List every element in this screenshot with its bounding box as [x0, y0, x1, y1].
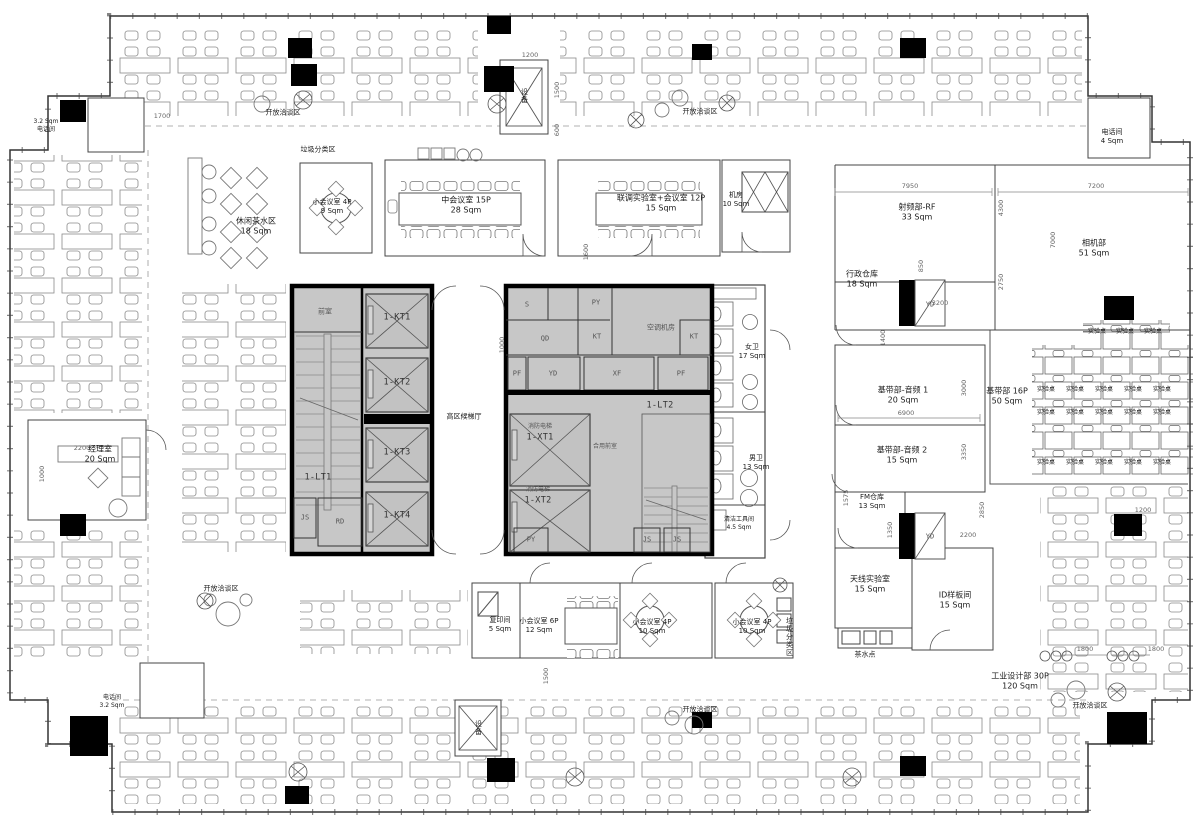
label-open-lounge-1: 开放洽谈区 [266, 108, 301, 117]
label-shaft-yd-top: YD [926, 300, 934, 309]
label-baseband-dept: 基带部 16P50 Sqm [986, 387, 1028, 408]
label-admin-warehouse: 行政仓库18 Sqm [846, 270, 878, 291]
dim-7200: 7200 [1088, 182, 1105, 190]
lab-table-label: 实验桌 [1124, 459, 1142, 467]
room-area: 15 Sqm [939, 601, 972, 611]
room-area: 4.5 Sqm [724, 524, 754, 532]
lab-table-label: 实验桌 [1066, 409, 1084, 417]
room-name: 机房 [723, 191, 750, 200]
label-joint-lab-meeting: 联调实验室+会议室 12P15 Sqm [617, 194, 705, 215]
label-men-wc: 男卫13 Sqm [743, 454, 770, 472]
label-elevator-kt3: 1-KT3 [383, 447, 410, 458]
room-name: 行政仓库 [846, 270, 878, 280]
dim-1000-core: 1000 [498, 337, 506, 354]
label-small-meeting-6p: 小会议室 6P12 Sqm [520, 617, 559, 635]
room-name: 联调实验室+会议室 12P [617, 194, 705, 204]
label-open-lounge-4: 开放洽谈区 [683, 705, 718, 714]
label-stair-lt2: 1-LT2 [646, 400, 673, 411]
label-mid-meeting: 中会议室 15P28 Sqm [441, 196, 491, 217]
lab-table-label: 实验桌 [1037, 386, 1055, 394]
label-shaft-kt-a: KT [593, 332, 601, 341]
room-name: 女卫 [739, 343, 766, 352]
room-name: ID样板间 [939, 591, 972, 601]
lab-table-label: 实验桌 [1153, 386, 1171, 394]
room-name: 相机部 [1079, 239, 1110, 249]
room-name: 小会议室 4P [733, 618, 772, 627]
dim-1000-left: 1000 [38, 466, 46, 483]
room-area: 15 Sqm [617, 204, 705, 214]
room-name: 电话间 [34, 126, 59, 134]
label-shaft-kt-b: KT [690, 332, 698, 341]
label-elevator-kt2: 1-KT2 [383, 377, 410, 388]
top-row-rooms [300, 160, 790, 256]
lab-table-label: 实验桌 [1144, 328, 1162, 336]
dim-1600: 1600 [582, 244, 590, 261]
label-shaft-js-a: JS [643, 535, 651, 544]
label-cleaning-room: 清洁工具间4.5 Sqm [724, 516, 754, 532]
dim-850: 850 [917, 260, 925, 272]
label-phone-top-right: 电话间4 Sqm [1101, 128, 1123, 146]
room-name: 经理室 [85, 445, 116, 455]
label-shaft-xf: XF [613, 369, 621, 378]
room-name: 基带部-音频 1 [878, 386, 929, 396]
dim-2750: 2750 [997, 274, 1005, 291]
label-shaft-yd-bottom: YD [926, 532, 934, 541]
room-area: 13 Sqm [859, 502, 886, 511]
room-name: 基带部 16P [986, 387, 1028, 397]
room-area: 17 Sqm [739, 352, 766, 361]
room-area: 3.2 Sqm [34, 118, 59, 126]
label-shaft-js-c: JS [301, 513, 309, 522]
label-id-sample-room: ID样板间15 Sqm [939, 591, 972, 612]
lab-table-label: 实验桌 [1153, 409, 1171, 417]
label-camera-dept: 相机部51 Sqm [1079, 239, 1110, 260]
dim-3000: 3000 [960, 380, 968, 397]
label-shared-front-room: 合用前室 [590, 443, 620, 451]
label-shaft-js-b: JS [673, 535, 681, 544]
label-lobby: 高区候梯厅 [447, 412, 482, 421]
label-equipment-bottom: 设备 [473, 720, 482, 736]
room-area: 15 Sqm [877, 456, 928, 466]
label-industrial-design: 工业设计部 30P120 Sqm [991, 672, 1049, 693]
label-elevator-kt1: 1-KT1 [383, 312, 410, 323]
lab-table-label: 实验桌 [1095, 459, 1113, 467]
dim-1500-top: 1500 [553, 82, 561, 99]
label-elevator-xt1: 1-XT1 [526, 432, 553, 443]
room-area: 9 Sqm [313, 207, 352, 216]
label-shaft-py-bottom: PY [527, 535, 535, 544]
room-name: 小会议室 6P [520, 617, 559, 626]
lab-table-label: 实验桌 [1116, 328, 1134, 336]
label-shaft-s: S [525, 300, 529, 309]
label-manager-office: 经理室20 Sqm [85, 445, 116, 466]
label-rf-dept: 射频部-RF33 Sqm [898, 203, 935, 224]
dim-1200-right: 1200 [1135, 506, 1152, 514]
label-baseband-audio-1: 基带部-音频 120 Sqm [878, 386, 929, 407]
label-machine-room: 机房10 Sqm [723, 191, 750, 209]
room-area: 20 Sqm [878, 396, 929, 406]
room-area: 5 Sqm [489, 625, 511, 634]
label-shaft-pf-b: PF [677, 369, 685, 378]
label-fm-warehouse: FM仓库13 Sqm [859, 493, 886, 511]
dim-2200-right: 2200 [960, 531, 977, 539]
room-area: 13 Sqm [743, 463, 770, 472]
label-stair-lt1: 1-LT1 [304, 472, 331, 483]
floor-plan-drawing [0, 0, 1200, 828]
lab-table-label: 实验桌 [1037, 459, 1055, 467]
label-open-lounge-5: 开放洽谈区 [1073, 701, 1108, 710]
room-name: 小会议室 4P [313, 198, 352, 207]
dim-1800-a: 1800 [1077, 645, 1094, 653]
label-shaft-yd-core: YD [549, 369, 557, 378]
dim-1200-top: 1200 [522, 51, 539, 59]
room-name: 工业设计部 30P [991, 672, 1049, 682]
floor-plan: 休闲茶水区18 Sqm 小会议室 4P9 Sqm 中会议室 15P28 Sqm … [0, 0, 1200, 828]
room-area: 33 Sqm [898, 213, 935, 223]
label-shaft-pf-a: PF [513, 369, 521, 378]
dim-1800-b: 1800 [1148, 645, 1165, 653]
lab-table-label: 实验桌 [1095, 386, 1113, 394]
dim-4300: 4300 [997, 200, 1005, 217]
room-name: 中会议室 15P [441, 196, 491, 206]
label-copy-room: 复印间5 Sqm [489, 616, 511, 634]
room-name: 天线实验室 [850, 575, 890, 585]
label-shaft-qd: QD [541, 334, 549, 343]
room-area: 15 Sqm [850, 585, 890, 595]
room-area: 4 Sqm [1101, 137, 1123, 146]
dim-1500-bottom: 1500 [542, 668, 550, 685]
label-small-meeting-4p-mid: 小会议室 4P10 Sqm [633, 618, 672, 636]
label-front-room: 前室 [318, 307, 332, 316]
label-shaft-rd: RD [336, 517, 344, 526]
dim-6900: 6900 [898, 409, 915, 417]
label-elevator-kt4: 1-KT4 [383, 510, 410, 521]
room-name: 基带部-音频 2 [877, 446, 928, 456]
room-area: 18 Sqm [236, 227, 276, 237]
lab-table-label: 实验桌 [1066, 386, 1084, 394]
room-name: 男卫 [743, 454, 770, 463]
label-small-meeting-4p-top: 小会议室 4P9 Sqm [313, 198, 352, 216]
label-shaft-py-top: PY [592, 298, 600, 307]
label-baseband-audio-2: 基带部-音频 215 Sqm [877, 446, 928, 467]
room-name: 电话间 [1101, 128, 1123, 137]
label-fire-elevator-1: 消防电梯 [528, 423, 552, 431]
room-name: FM仓库 [859, 493, 886, 502]
room-name: 电话间 [100, 694, 125, 702]
label-fire-elevator-2: 消防电梯 [526, 486, 550, 494]
room-name: 小会议室 4P [633, 618, 672, 627]
room-area: 10 Sqm [723, 200, 750, 209]
room-name: 复印间 [489, 616, 511, 625]
room-area: 28 Sqm [441, 206, 491, 216]
dim-3350: 3350 [960, 444, 968, 461]
room-name: 射频部-RF [898, 203, 935, 213]
label-trash-sort-right: 垃圾分类区 [784, 617, 793, 657]
label-open-lounge-2: 开放洽谈区 [683, 107, 718, 116]
lab-table-label: 实验桌 [1124, 409, 1142, 417]
room-area: 10 Sqm [733, 627, 772, 636]
room-area: 10 Sqm [633, 627, 672, 636]
room-area: 3.2 Sqm [100, 702, 125, 710]
label-tea-point: 茶水点 [855, 650, 876, 659]
room-area: 18 Sqm [846, 280, 878, 290]
dim-1400: 1400 [879, 330, 887, 347]
dim-2850: 2850 [978, 502, 986, 519]
label-elevator-xt2: 1-XT2 [524, 495, 551, 506]
label-antenna-lab: 天线实验室15 Sqm [850, 575, 890, 596]
label-trash-sort-top: 垃圾分类区 [301, 145, 336, 154]
lab-table-label: 实验桌 [1066, 459, 1084, 467]
label-small-meeting-4p-right: 小会议室 4P10 Sqm [733, 618, 772, 636]
dim-7950: 7950 [902, 182, 919, 190]
dim-7000: 7000 [1049, 232, 1057, 249]
label-hvac-room: 空调机房 [647, 323, 675, 332]
label-open-lounge-3: 开放洽谈区 [204, 584, 239, 593]
room-area: 120 Sqm [991, 682, 1049, 692]
label-equipment-top: 设备 [519, 88, 528, 104]
dim-1350: 1350 [886, 522, 894, 539]
lab-table-label: 实验桌 [1037, 409, 1055, 417]
lab-table-label: 实验桌 [1088, 328, 1106, 336]
room-area: 20 Sqm [85, 455, 116, 465]
lab-table-label: 实验桌 [1095, 409, 1113, 417]
label-phone-bottom-left: 电话间3.2 Sqm [100, 694, 125, 710]
core-right [506, 286, 712, 554]
dim-1575: 1575 [842, 490, 850, 507]
dim-600: 600 [553, 124, 561, 136]
label-leisure-tea: 休闲茶水区18 Sqm [236, 217, 276, 238]
room-name: 休闲茶水区 [236, 217, 276, 227]
label-phone-top-left: 3.2 Sqm电话间 [34, 118, 59, 134]
lab-table-label: 实验桌 [1124, 386, 1142, 394]
label-women-wc: 女卫17 Sqm [739, 343, 766, 361]
dim-1700: 1700 [154, 112, 171, 120]
room-area: 51 Sqm [1079, 249, 1110, 259]
room-area: 12 Sqm [520, 626, 559, 635]
lab-table-label: 实验桌 [1153, 459, 1171, 467]
core-left [292, 286, 432, 554]
room-area: 50 Sqm [986, 397, 1028, 407]
room-name: 清洁工具间 [724, 516, 754, 524]
